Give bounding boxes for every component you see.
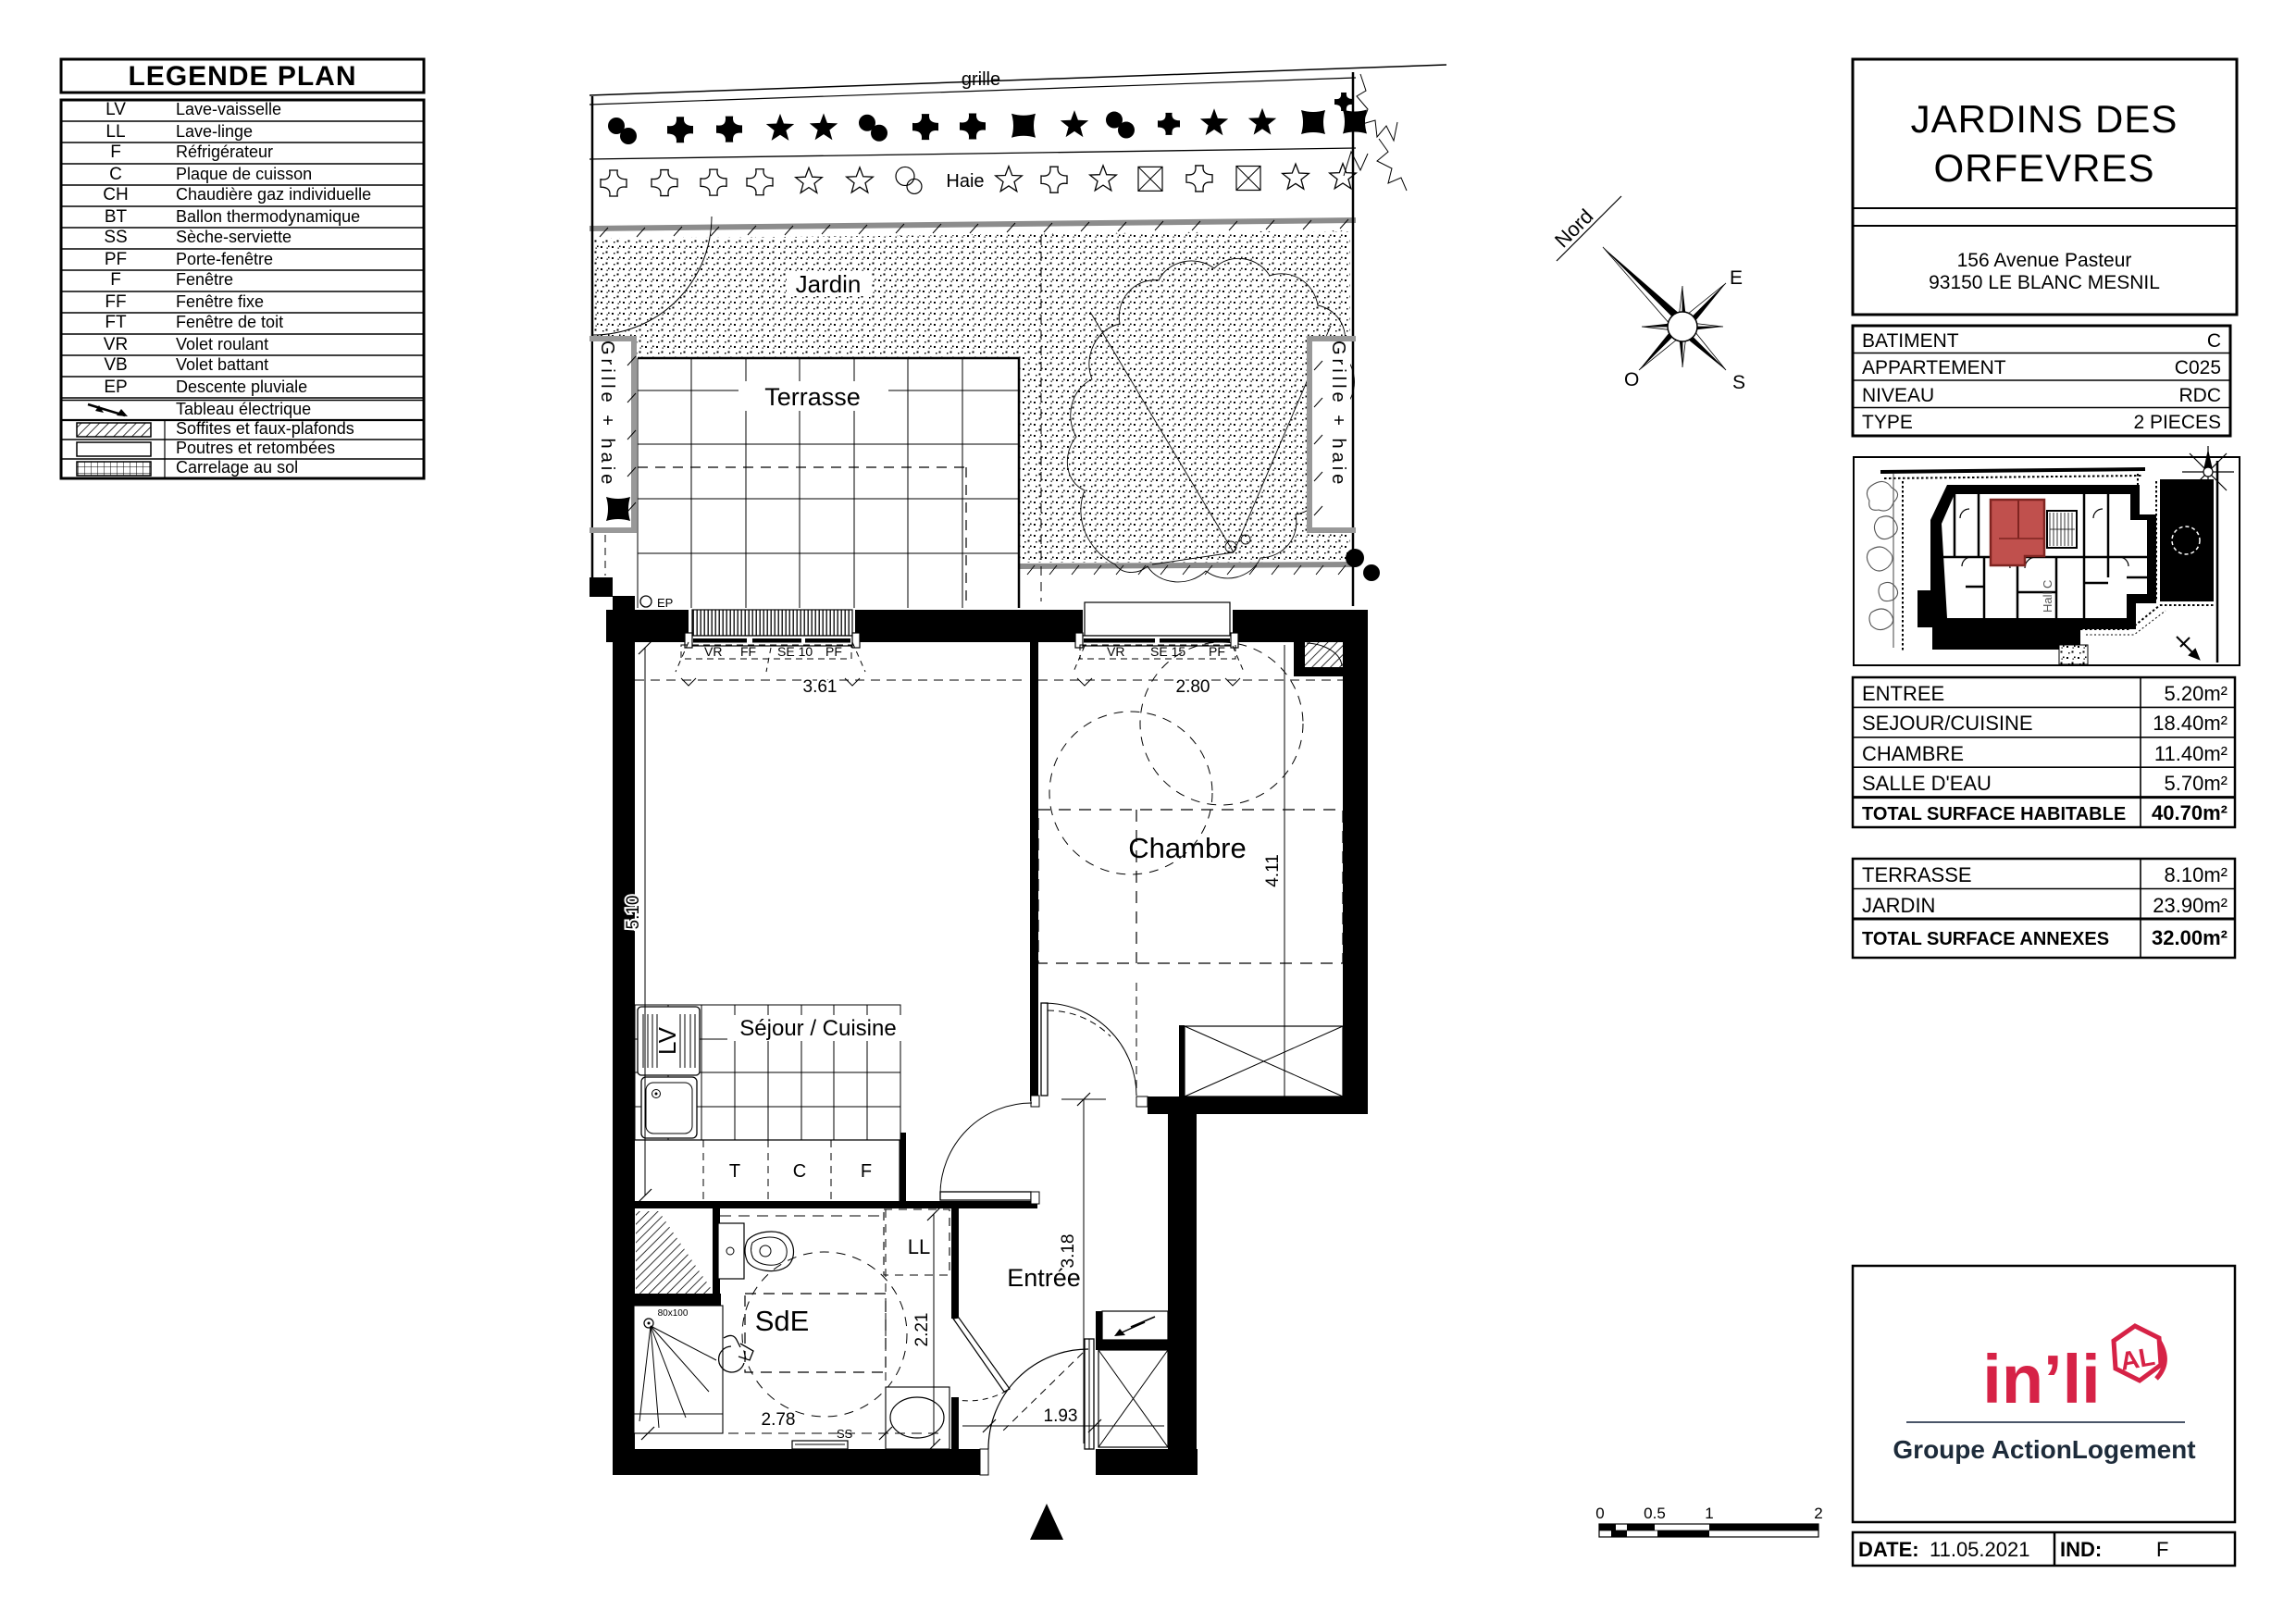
svg-text:Volet battant: Volet battant xyxy=(176,355,268,374)
svg-text:Carrelage au sol: Carrelage au sol xyxy=(176,458,298,477)
svg-text:5.70m²: 5.70m² xyxy=(2165,772,2228,795)
svg-text:Terrasse: Terrasse xyxy=(764,383,861,411)
svg-text:Séjour / Cuisine: Séjour / Cuisine xyxy=(739,1016,896,1041)
svg-text:C: C xyxy=(2207,330,2221,352)
svg-text:F: F xyxy=(861,1161,872,1182)
svg-text:DATE:: DATE: xyxy=(1858,1538,1919,1561)
svg-text:E: E xyxy=(1730,267,1743,289)
svg-text:Volet roulant: Volet roulant xyxy=(176,335,268,353)
svg-text:Ballon thermodynamique: Ballon thermodynamique xyxy=(176,207,360,226)
svg-text:EP: EP xyxy=(657,596,673,610)
svg-text:LL: LL xyxy=(908,1235,930,1258)
svg-text:23.90m²: 23.90m² xyxy=(2153,894,2228,917)
svg-text:8.10m²: 8.10m² xyxy=(2165,863,2228,886)
svg-text:JARDIN: JARDIN xyxy=(1862,894,1935,917)
svg-text:11.40m²: 11.40m² xyxy=(2154,742,2228,765)
svg-text:VR: VR xyxy=(104,335,128,354)
svg-text:Plaque de cuisson: Plaque de cuisson xyxy=(176,165,312,183)
svg-text:TYPE: TYPE xyxy=(1862,412,1913,433)
svg-text:VB: VB xyxy=(104,355,127,375)
svg-text:156 Avenue Pasteur: 156 Avenue Pasteur xyxy=(1957,250,2132,271)
svg-text:Porte-fenêtre: Porte-fenêtre xyxy=(176,250,273,268)
svg-text:LV: LV xyxy=(653,1026,681,1055)
svg-text:80x100: 80x100 xyxy=(658,1308,689,1319)
svg-text:Fenêtre de toit: Fenêtre de toit xyxy=(176,313,283,331)
svg-text:40.70m²: 40.70m² xyxy=(2152,801,2228,824)
svg-text:C: C xyxy=(793,1161,806,1182)
svg-text:18.40m²: 18.40m² xyxy=(2153,712,2228,735)
svg-text:CHAMBRE: CHAMBRE xyxy=(1862,742,1964,765)
svg-text:LV: LV xyxy=(105,100,126,119)
svg-text:Descente pluviale: Descente pluviale xyxy=(176,378,307,396)
svg-text:Tableau électrique: Tableau électrique xyxy=(176,400,311,418)
svg-text:Grille + haie: Grille + haie xyxy=(1328,341,1348,488)
svg-text:0: 0 xyxy=(1595,1505,1604,1522)
svg-text:LL: LL xyxy=(105,122,125,142)
svg-text:1: 1 xyxy=(1705,1505,1713,1522)
svg-text:EP: EP xyxy=(104,378,127,397)
svg-text:FF: FF xyxy=(105,292,126,312)
svg-text:FT: FT xyxy=(105,313,127,332)
svg-text:Lave-linge: Lave-linge xyxy=(176,122,253,141)
svg-text:1.93: 1.93 xyxy=(1044,1406,1078,1426)
svg-text:O: O xyxy=(1624,369,1639,390)
svg-text:TOTAL SURFACE HABITABLE: TOTAL SURFACE HABITABLE xyxy=(1862,804,2126,824)
svg-text:PF: PF xyxy=(105,250,127,269)
svg-text:VR: VR xyxy=(1107,644,1124,659)
svg-text:Haie: Haie xyxy=(946,171,984,192)
svg-text:Chaudière gaz individuelle: Chaudière gaz individuelle xyxy=(176,185,371,204)
svg-text:Lave-vaisselle: Lave-vaisselle xyxy=(176,100,281,118)
svg-text:PF: PF xyxy=(825,644,842,659)
svg-text:TERRASSE: TERRASSE xyxy=(1862,863,1972,886)
svg-text:RDC: RDC xyxy=(2179,385,2222,406)
svg-text:T: T xyxy=(729,1161,740,1182)
svg-text:4.11: 4.11 xyxy=(1263,854,1283,887)
svg-text:LEGENDE PLAN: LEGENDE PLAN xyxy=(128,61,356,92)
svg-text:Hall C: Hall C xyxy=(2041,580,2054,613)
svg-text:VR: VR xyxy=(704,644,722,659)
svg-text:Sèche-serviette: Sèche-serviette xyxy=(176,228,292,246)
svg-text:F: F xyxy=(2156,1538,2168,1561)
svg-text:BATIMENT: BATIMENT xyxy=(1862,330,1959,352)
svg-text:5.10: 5.10 xyxy=(624,896,643,930)
svg-text:JARDINS DES: JARDINS DES xyxy=(1911,97,2178,141)
svg-text:ENTREE: ENTREE xyxy=(1862,682,1944,705)
svg-text:Réfrigérateur: Réfrigérateur xyxy=(176,142,273,161)
svg-text:0.5: 0.5 xyxy=(1644,1505,1666,1522)
svg-text:S: S xyxy=(1732,372,1745,393)
svg-text:C: C xyxy=(109,165,122,184)
svg-text:TOTAL SURFACE ANNEXES: TOTAL SURFACE ANNEXES xyxy=(1862,929,2109,949)
svg-text:SALLE D'EAU: SALLE D'EAU xyxy=(1862,772,1992,795)
svg-text:Grille + haie: Grille + haie xyxy=(597,341,617,488)
svg-text:2 PIECES: 2 PIECES xyxy=(2133,412,2221,433)
svg-text:Poutres et retombées: Poutres et retombées xyxy=(176,439,335,457)
svg-text:APPARTEMENT: APPARTEMENT xyxy=(1862,357,2006,378)
svg-text:in’li: in’li xyxy=(1982,1341,2100,1418)
svg-text:IND:: IND: xyxy=(2060,1538,2102,1561)
svg-text:grille: grille xyxy=(962,69,1000,90)
svg-text:2.78: 2.78 xyxy=(762,1410,796,1430)
svg-text:3.61: 3.61 xyxy=(803,677,838,697)
svg-text:Groupe ActionLogement: Groupe ActionLogement xyxy=(1893,1435,2195,1464)
svg-text:Chambre: Chambre xyxy=(1128,832,1247,864)
svg-text:FF: FF xyxy=(740,644,756,659)
svg-text:SS: SS xyxy=(104,228,127,247)
svg-text:F: F xyxy=(110,270,121,290)
svg-text:C025: C025 xyxy=(2175,357,2221,378)
svg-text:SdE: SdE xyxy=(755,1305,810,1337)
svg-text:3.18: 3.18 xyxy=(1059,1234,1078,1269)
svg-text:2.80: 2.80 xyxy=(1176,677,1210,697)
svg-text:93150 LE BLANC MESNIL: 93150 LE BLANC MESNIL xyxy=(1929,272,2160,293)
svg-text:BT: BT xyxy=(105,207,128,227)
svg-text:F: F xyxy=(110,142,121,162)
svg-text:Fenêtre fixe: Fenêtre fixe xyxy=(176,292,264,311)
svg-text:Soffites et faux-plafonds: Soffites et faux-plafonds xyxy=(176,419,354,438)
svg-text:CH: CH xyxy=(103,185,128,204)
svg-text:11.05.2021: 11.05.2021 xyxy=(1930,1538,2029,1561)
svg-text:ORFEVRES: ORFEVRES xyxy=(1933,146,2154,190)
svg-text:Jardin: Jardin xyxy=(796,270,862,298)
svg-text:SE 15: SE 15 xyxy=(1150,644,1185,659)
svg-text:SE 10: SE 10 xyxy=(777,644,813,659)
svg-text:SEJOUR/CUISINE: SEJOUR/CUISINE xyxy=(1862,712,2033,735)
svg-text:NIVEAU: NIVEAU xyxy=(1862,385,1934,406)
svg-text:5.20m²: 5.20m² xyxy=(2165,682,2228,705)
svg-text:2.21: 2.21 xyxy=(912,1313,932,1347)
svg-text:Fenêtre: Fenêtre xyxy=(176,270,233,289)
svg-text:AL: AL xyxy=(2118,1342,2157,1376)
svg-text:2: 2 xyxy=(1814,1505,1822,1522)
svg-text:PF: PF xyxy=(1209,644,1225,659)
svg-text:32.00m²: 32.00m² xyxy=(2152,926,2228,949)
